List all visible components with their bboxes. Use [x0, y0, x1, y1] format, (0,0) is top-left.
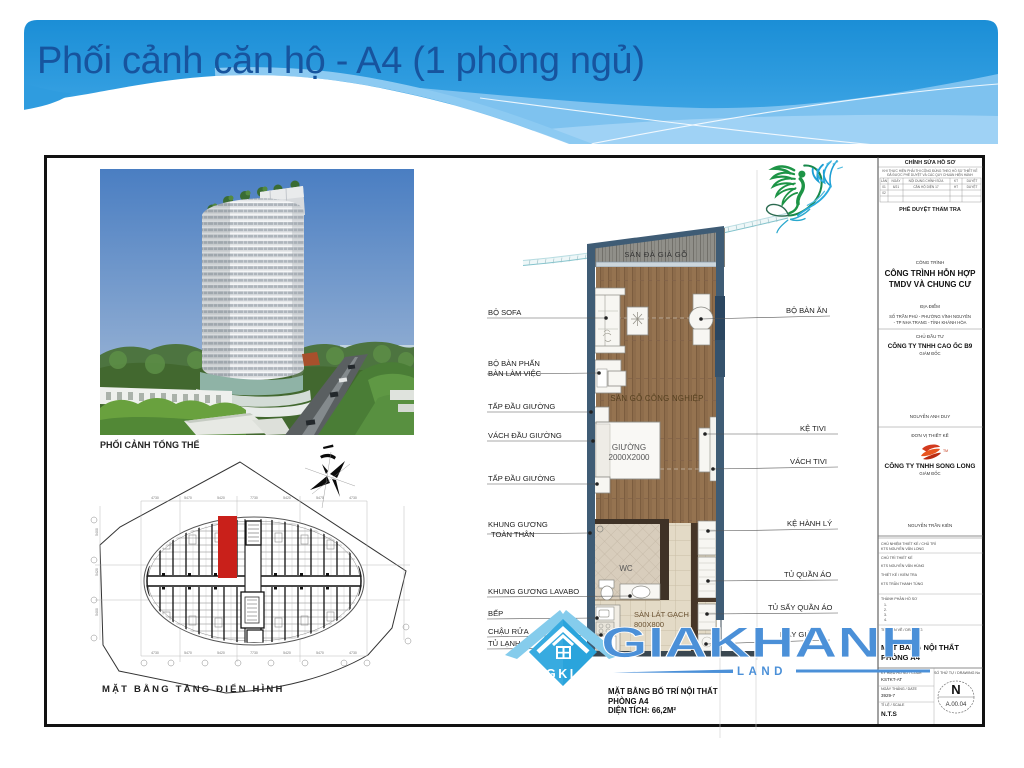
svg-text:KHUNG GƯƠNG: KHUNG GƯƠNG [488, 520, 548, 529]
svg-text:01: 01 [882, 185, 886, 189]
svg-text:LẦN: LẦN [881, 179, 888, 183]
svg-text:2.: 2. [884, 608, 887, 612]
svg-text:5470: 5470 [316, 651, 324, 655]
svg-text:7730: 7730 [250, 496, 258, 500]
svg-text:ĐÃ ĐƯỢC PHÊ DUYỆT VÀ CÁC QUY C: ĐÃ ĐƯỢC PHÊ DUYỆT VÀ CÁC QUY CHUẨN HIỆN … [887, 172, 973, 177]
svg-text:5470: 5470 [316, 496, 324, 500]
svg-text:CÔNG TRÌNH HỖN HỢP: CÔNG TRÌNH HỖN HỢP [885, 269, 976, 278]
svg-text:TOÀN THÂN: TOÀN THÂN [491, 530, 535, 539]
svg-text:5400: 5400 [95, 608, 99, 616]
svg-text:THIẾT KẾ / KIỂM TRA: THIẾT KẾ / KIỂM TRA [881, 572, 918, 577]
svg-text:KSTKT-AT: KSTKT-AT [881, 677, 902, 682]
svg-text:3929-7: 3929-7 [881, 693, 896, 698]
svg-text:TẤP ĐẦU GIƯỜNG: TẤP ĐẦU GIƯỜNG [488, 401, 555, 411]
svg-text:4730: 4730 [151, 496, 159, 500]
svg-text:DIỆN TÍCH: 66,2M²: DIỆN TÍCH: 66,2M² [608, 706, 676, 715]
svg-text:ĐƠN VỊ THIẾT KẾ: ĐƠN VỊ THIẾT KẾ [911, 432, 948, 438]
svg-text:N.T.S: N.T.S [881, 711, 898, 718]
svg-text:GIÁM ĐỐC: GIÁM ĐỐC [919, 471, 940, 476]
svg-text:N: N [951, 682, 960, 697]
svg-text:SÀN ĐÁ GIẢ GỖ: SÀN ĐÁ GIẢ GỖ [624, 250, 687, 259]
svg-text:CHỈNH SỬA HỒ SƠ: CHỈNH SỬA HỒ SƠ [905, 159, 956, 166]
svg-text:NGÀY THÁNG / DATE: NGÀY THÁNG / DATE [881, 687, 918, 691]
svg-text:DUYỆT: DUYỆT [967, 178, 978, 183]
svg-text:SỐ TRẦN PHÚ - PHƯỜNG VĨNH NGUY: SỐ TRẦN PHÚ - PHƯỜNG VĨNH NGUYÊN [889, 314, 971, 319]
svg-text:2000X2000: 2000X2000 [609, 453, 650, 462]
svg-text:PHÊ DUYỆT THẨM TRA: PHÊ DUYỆT THẨM TRA [899, 205, 961, 213]
svg-text:LAND: LAND [737, 666, 787, 678]
svg-text:5420: 5420 [217, 496, 225, 500]
svg-text:Phối cảnh căn hộ - A4 (1 phòng: Phối cảnh căn hộ - A4 (1 phòng ngủ) [37, 40, 645, 82]
svg-text:ĐỊA ĐIỂM: ĐỊA ĐIỂM [920, 303, 940, 309]
svg-text:BỘ BÀN ĂN: BỘ BÀN ĂN [786, 306, 827, 315]
svg-text:4730: 4730 [151, 651, 159, 655]
svg-text:DUYỆT: DUYỆT [967, 184, 978, 189]
svg-text:4730: 4730 [349, 496, 357, 500]
svg-text:7730: 7730 [250, 651, 258, 655]
svg-text:CHẬU RỬA: CHẬU RỬA [488, 627, 530, 636]
svg-text:NGUYỄN ANH DUY: NGUYỄN ANH DUY [910, 413, 951, 419]
svg-text:3.: 3. [884, 613, 887, 617]
svg-text:- TP NHA TRANG - TỈNH KHÁNH HÒ: - TP NHA TRANG - TỈNH KHÁNH HÒA [894, 320, 967, 325]
svg-text:NGÀY: NGÀY [891, 179, 901, 183]
svg-text:HT: HT [954, 185, 958, 189]
svg-text:GKL: GKL [546, 667, 580, 681]
svg-text:KTS TRẦN THANH TÙNG: KTS TRẦN THANH TÙNG [881, 581, 923, 586]
svg-text:KTS NGUYỄN VĂN HÙNG: KTS NGUYỄN VĂN HÙNG [881, 563, 925, 568]
svg-text:KHUNG GƯƠNG LAVABO: KHUNG GƯƠNG LAVABO [488, 587, 579, 596]
svg-text:TỦ SẤY QUẦN ÁO: TỦ SẤY QUẦN ÁO [768, 602, 833, 612]
svg-text:CÔNG TY TNHH SONG LONG: CÔNG TY TNHH SONG LONG [885, 461, 976, 470]
svg-text:VÁCH TIVI: VÁCH TIVI [790, 457, 827, 466]
svg-text:CHỦ TRÌ THIẾT KẾ: CHỦ TRÌ THIẾT KẾ [881, 555, 913, 560]
svg-text:KTS NGUYỄN VĂN LONG: KTS NGUYỄN VĂN LONG [881, 546, 924, 551]
svg-text:THÀNH PHẦN HỒ SƠ: THÀNH PHẦN HỒ SƠ [881, 596, 917, 601]
svg-text:MẶT BẰNG TẦNG ĐIỂN HÌNH: MẶT BẰNG TẦNG ĐIỂN HÌNH [102, 683, 285, 695]
svg-text:VÁCH ĐẦU GIƯỜNG: VÁCH ĐẦU GIƯỜNG [488, 430, 562, 440]
svg-text:5420: 5420 [283, 496, 291, 500]
svg-text:5470: 5470 [184, 651, 192, 655]
svg-text:TM: TM [943, 449, 948, 453]
svg-text:GIAKHANH: GIAKHANH [601, 619, 924, 667]
svg-text:NỘI DUNG CHỈNH SỬA: NỘI DUNG CHỈNH SỬA [909, 178, 945, 183]
svg-text:TỦ QUẦN ÁO: TỦ QUẦN ÁO [784, 569, 831, 579]
svg-text:PHỐI CẢNH TỔNG THỂ: PHỐI CẢNH TỔNG THỂ [100, 439, 200, 450]
svg-text:TMDV VÀ CHUNG CƯ: TMDV VÀ CHUNG CƯ [889, 280, 972, 289]
svg-text:5420: 5420 [217, 651, 225, 655]
svg-text:5420: 5420 [95, 568, 99, 576]
svg-text:TỈ LỆ / SCALE: TỈ LỆ / SCALE [881, 702, 905, 707]
svg-text:KỆ HÀNH LÝ: KỆ HÀNH LÝ [787, 519, 832, 528]
svg-text:PHÒNG A4: PHÒNG A4 [608, 697, 649, 706]
svg-text:MẶT BẰNG BỐ TRÍ NỘI THẤT: MẶT BẰNG BỐ TRÍ NỘI THẤT [608, 686, 718, 696]
svg-text:CÔNG TRÌNH: CÔNG TRÌNH [916, 259, 944, 265]
svg-text:SÀN GỖ CÔNG NGHIỆP: SÀN GỖ CÔNG NGHIỆP [610, 394, 703, 403]
svg-text:4730: 4730 [349, 651, 357, 655]
svg-text:TẤP ĐẦU GIƯỜNG: TẤP ĐẦU GIƯỜNG [488, 473, 555, 483]
svg-text:BÀN LÀM VIỆC: BÀN LÀM VIỆC [488, 369, 542, 378]
svg-text:6/21: 6/21 [893, 185, 899, 189]
svg-text:KỆ TIVI: KỆ TIVI [800, 424, 826, 433]
svg-text:NGUYỄN TRẦN KIÊN: NGUYỄN TRẦN KIÊN [908, 521, 952, 528]
svg-text:SÀN LÁT GẠCH: SÀN LÁT GẠCH [634, 610, 689, 619]
svg-text:BỘ BÀN PHẤN: BỘ BÀN PHẤN [488, 358, 540, 368]
svg-text:SỐ THỨ TỰ / DRAWING No: SỐ THỨ TỰ / DRAWING No [934, 670, 980, 675]
svg-text:5420: 5420 [283, 651, 291, 655]
svg-text:CHỦ ĐẦU TƯ: CHỦ ĐẦU TƯ [916, 333, 944, 339]
svg-text:CHỦ NHIỆM THIẾT KẾ / CHỦ TRÌ: CHỦ NHIỆM THIẾT KẾ / CHỦ TRÌ [881, 541, 936, 546]
svg-text:GIƯỜNG: GIƯỜNG [612, 443, 646, 452]
svg-text:5470: 5470 [184, 496, 192, 500]
svg-text:BẾP: BẾP [488, 608, 503, 618]
svg-text:CĂN HỘ DIỆN 17: CĂN HỘ DIỆN 17 [913, 184, 939, 189]
svg-text:02: 02 [882, 191, 886, 195]
svg-text:KT: KT [954, 179, 958, 183]
svg-text:5400: 5400 [95, 528, 99, 536]
svg-text:BỘ SOFA: BỘ SOFA [488, 308, 522, 317]
svg-text:1.: 1. [884, 603, 887, 607]
svg-text:GIÁM ĐỐC: GIÁM ĐỐC [919, 351, 940, 356]
svg-text:A.00.04: A.00.04 [946, 702, 967, 708]
svg-text:WC: WC [619, 564, 633, 573]
